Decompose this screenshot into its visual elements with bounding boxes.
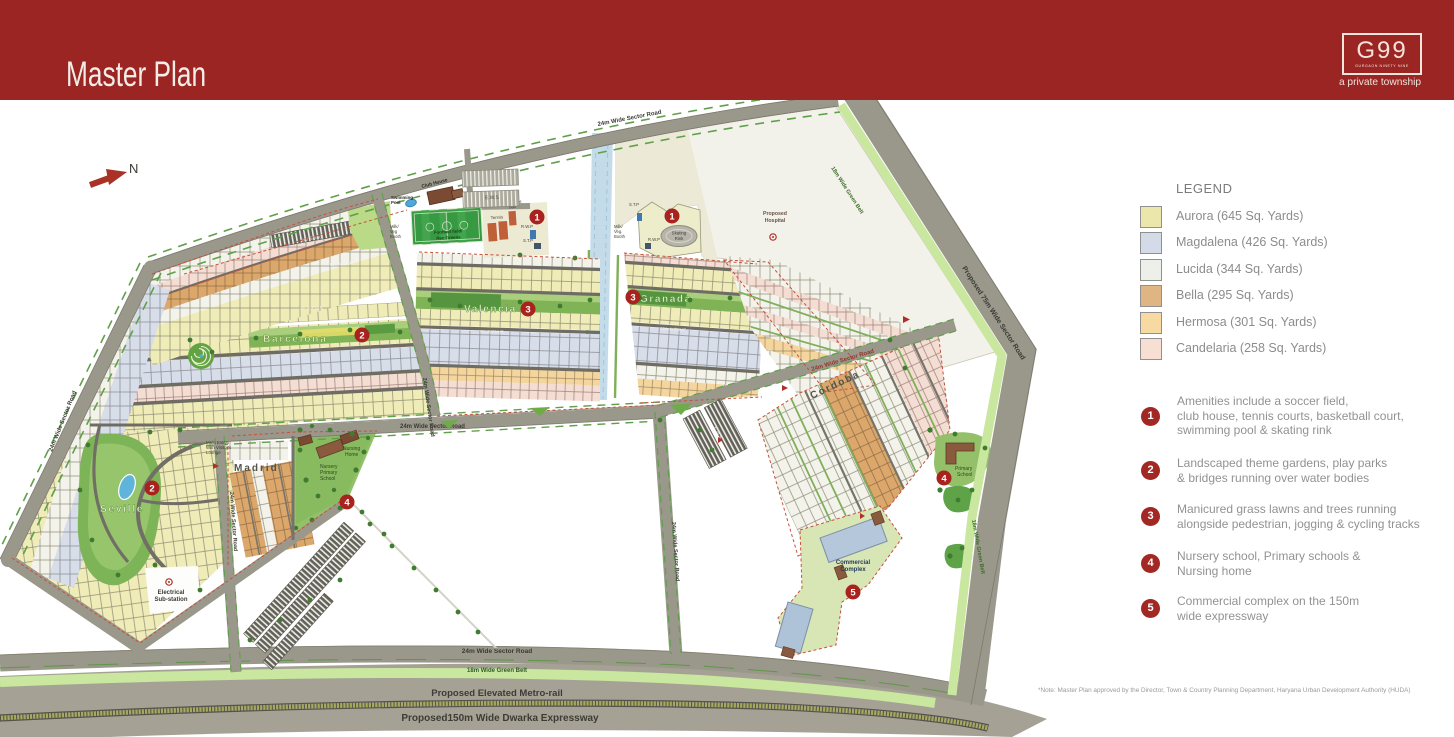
svg-text:Booth: Booth xyxy=(390,234,402,239)
svg-text:24m Wide Sector Road: 24m Wide Sector Road xyxy=(462,648,532,655)
svg-text:Tennis: Tennis xyxy=(490,214,503,220)
svg-text:4: 4 xyxy=(344,498,350,509)
svg-text:Granada: Granada xyxy=(640,294,692,305)
svg-text:2: 2 xyxy=(149,484,154,495)
svg-text:Barcelona: Barcelona xyxy=(263,334,328,345)
svg-text:24m Wide Sector Road: 24m Wide Sector Road xyxy=(400,424,465,430)
svg-text:Rink: Rink xyxy=(675,236,685,241)
svg-text:Complex: Complex xyxy=(840,567,866,573)
svg-text:Valencia: Valencia xyxy=(464,304,517,315)
svg-text:Electrical: Electrical xyxy=(158,590,185,596)
svg-text:3: 3 xyxy=(630,293,635,304)
svg-text:3: 3 xyxy=(525,305,530,316)
svg-text:18m Wide Green Belt: 18m Wide Green Belt xyxy=(467,668,527,674)
svg-text:N: N xyxy=(129,161,138,176)
svg-text:5: 5 xyxy=(850,588,856,599)
svg-text:R.W.P: R.W.P xyxy=(521,224,533,229)
svg-text:Home: Home xyxy=(345,452,359,458)
svg-text:Pool: Pool xyxy=(391,200,401,205)
svg-text:Booth: Booth xyxy=(614,234,626,239)
svg-text:Skating: Skating xyxy=(672,231,687,236)
svg-text:S.T.P: S.T.P xyxy=(629,202,639,207)
svg-text:4: 4 xyxy=(941,474,947,485)
svg-text:Proposed Elevated Metro-rail: Proposed Elevated Metro-rail xyxy=(431,688,562,699)
svg-text:Commercial: Commercial xyxy=(836,560,871,566)
svg-text:Madrid: Madrid xyxy=(234,463,279,474)
svg-text:Proposed150m Wide Dwarka Expre: Proposed150m Wide Dwarka Expressway xyxy=(401,713,599,724)
svg-text:School: School xyxy=(957,472,972,478)
svg-text:S.T.P: S.T.P xyxy=(523,238,533,243)
svg-text:9th AVENUE: 9th AVENUE xyxy=(480,329,504,334)
svg-text:2: 2 xyxy=(359,331,364,342)
svg-text:Hospital: Hospital xyxy=(765,218,786,224)
svg-text:1: 1 xyxy=(669,212,675,223)
svg-text:1: 1 xyxy=(534,213,540,224)
svg-text:School: School xyxy=(320,476,335,482)
svg-text:Proposed: Proposed xyxy=(763,211,787,217)
svg-text:R.W.P: R.W.P xyxy=(648,237,660,242)
svg-text:Sub-station: Sub-station xyxy=(155,597,188,603)
svg-text:E.W.S: E.W.S xyxy=(485,195,500,202)
svg-text:Seville: Seville xyxy=(100,504,144,515)
svg-text:Lounge: Lounge xyxy=(206,450,221,455)
